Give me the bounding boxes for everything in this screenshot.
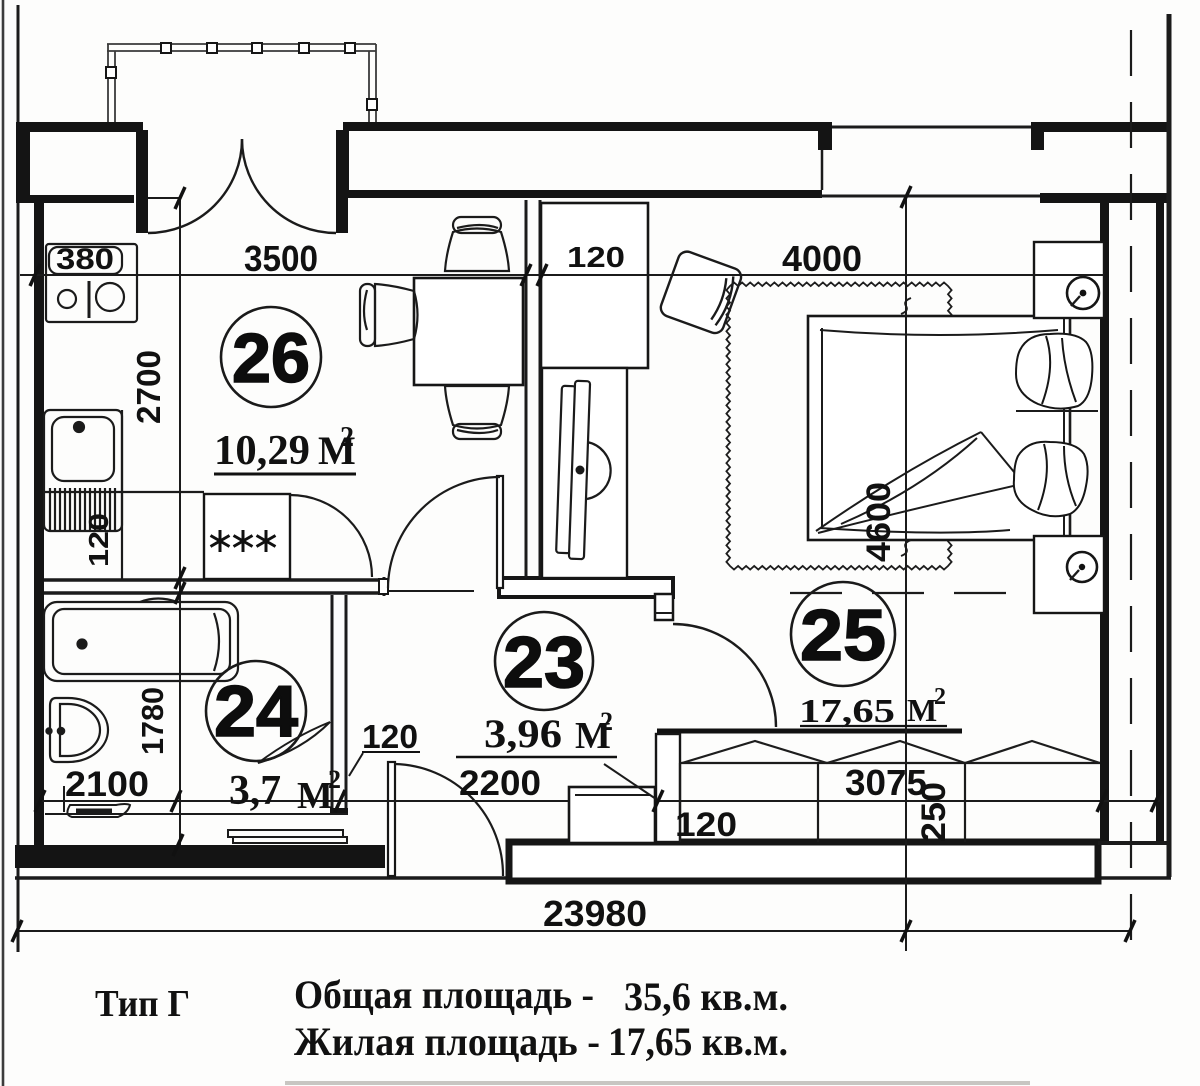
svg-text:2: 2 xyxy=(934,684,946,710)
svg-text:4600: 4600 xyxy=(860,482,898,562)
svg-text:2: 2 xyxy=(600,707,613,736)
svg-text:2: 2 xyxy=(328,765,341,794)
svg-text:3500: 3500 xyxy=(244,238,318,279)
svg-text:3075: 3075 xyxy=(845,762,927,803)
svg-text:2200: 2200 xyxy=(459,764,541,803)
svg-text:Тип Г: Тип Г xyxy=(95,983,190,1025)
svg-text:380: 380 xyxy=(56,243,114,276)
svg-text:17,65 кв.м.: 17,65 кв.м. xyxy=(608,1019,788,1064)
svg-text:2: 2 xyxy=(340,422,354,453)
svg-text:23: 23 xyxy=(503,623,585,703)
svg-text:2100: 2100 xyxy=(65,765,149,804)
svg-text:120: 120 xyxy=(567,242,625,274)
svg-text:23980: 23980 xyxy=(543,893,647,934)
svg-text:2700: 2700 xyxy=(130,350,167,424)
svg-text:1780: 1780 xyxy=(135,687,170,755)
svg-text:Жилая площадь -: Жилая площадь - xyxy=(294,1019,600,1064)
svg-text:3,96: 3,96 xyxy=(484,711,562,756)
svg-text:24: 24 xyxy=(214,672,298,752)
svg-text:4000: 4000 xyxy=(782,238,862,279)
svg-text:26: 26 xyxy=(232,319,310,397)
svg-text:25: 25 xyxy=(800,596,886,676)
svg-text:Общая площадь -: Общая площадь - xyxy=(294,972,594,1017)
svg-text:120: 120 xyxy=(83,513,114,567)
svg-text:10,29: 10,29 xyxy=(214,428,310,474)
svg-text:3,7: 3,7 xyxy=(229,768,281,814)
svg-text:120: 120 xyxy=(362,718,418,755)
svg-text:17,65: 17,65 xyxy=(799,693,895,730)
svg-text:120: 120 xyxy=(675,806,737,844)
svg-text:М: М xyxy=(907,692,937,728)
svg-text:35,6 кв.м.: 35,6 кв.м. xyxy=(624,974,788,1019)
